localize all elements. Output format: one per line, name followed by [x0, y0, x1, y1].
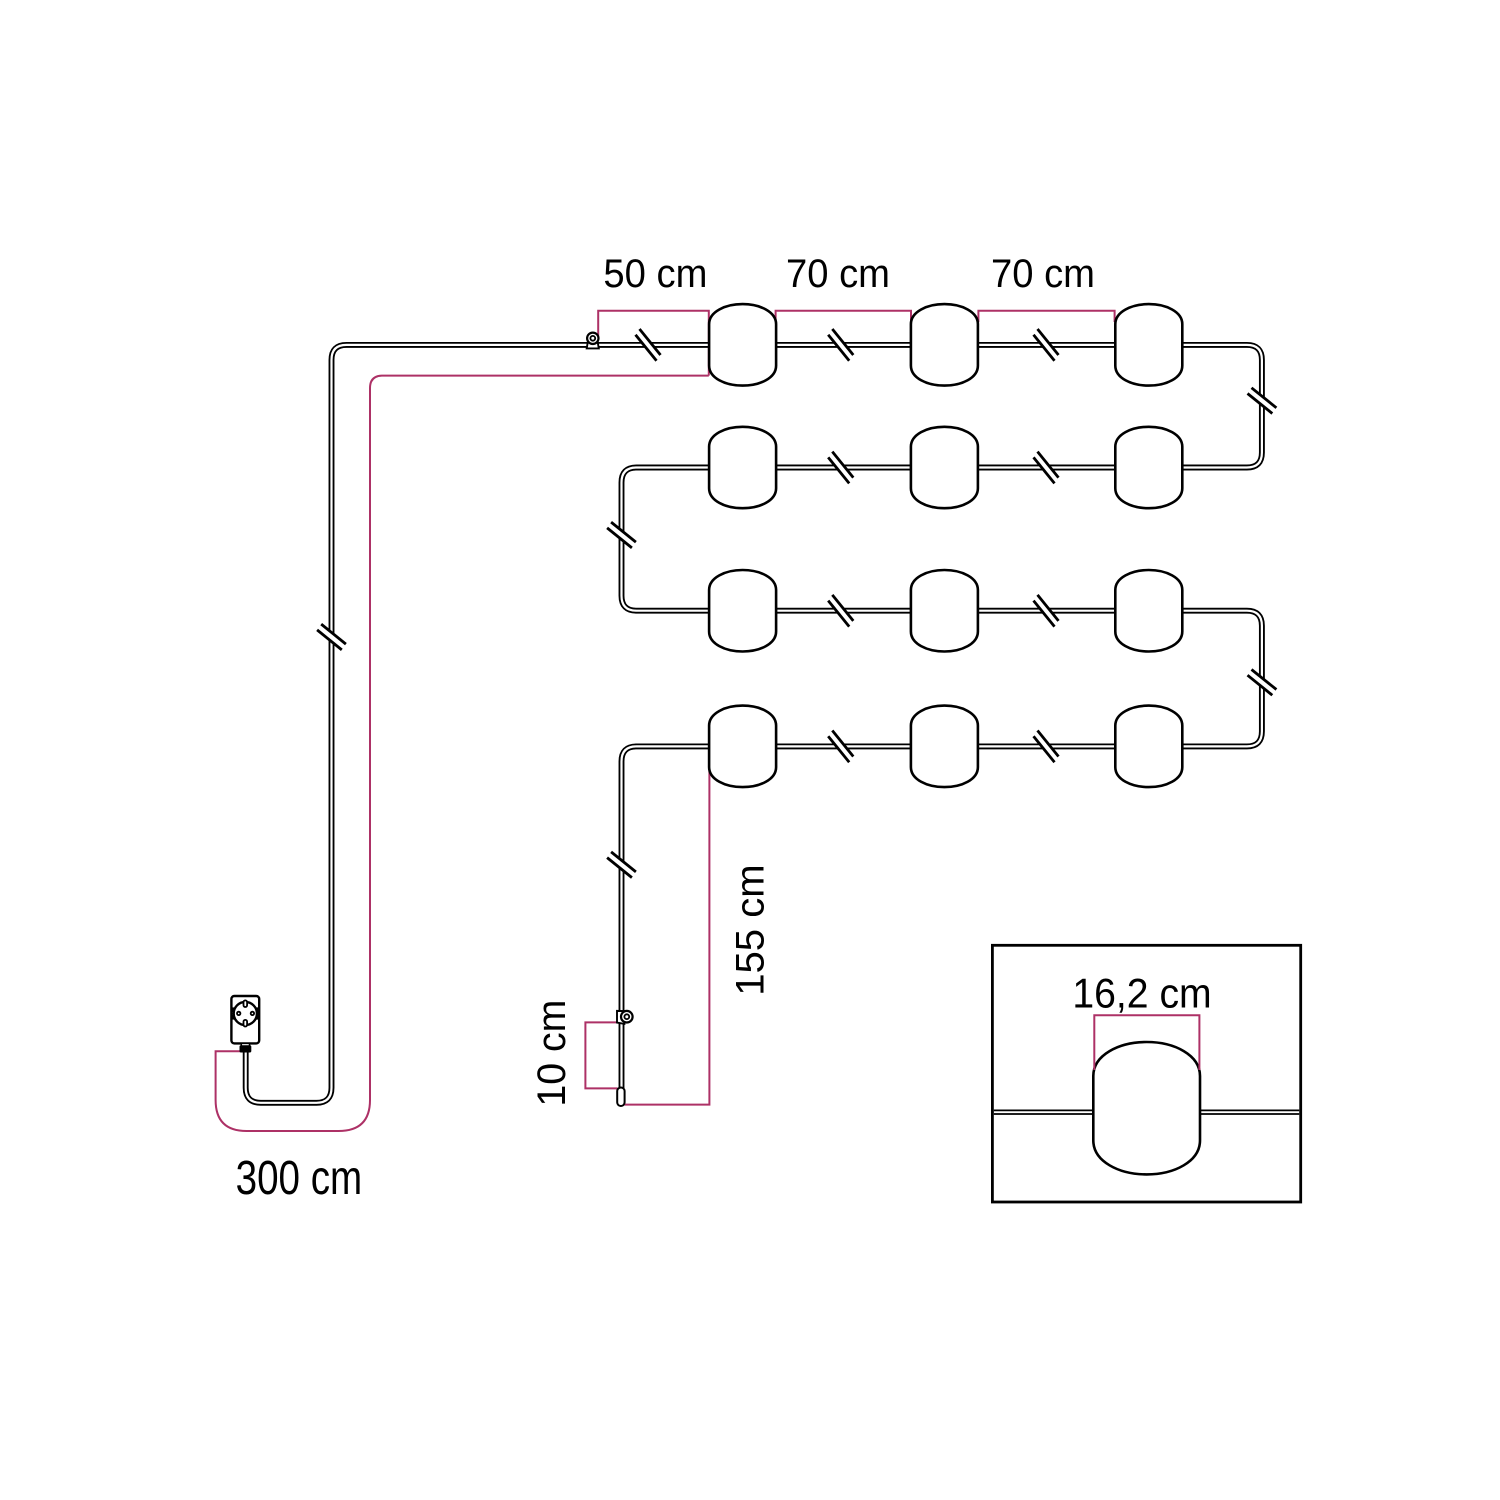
svg-text:155 cm: 155 cm: [729, 864, 773, 995]
svg-text:70 cm: 70 cm: [991, 252, 1095, 296]
svg-text:10 cm: 10 cm: [530, 1000, 574, 1107]
svg-text:16,2 cm: 16,2 cm: [1072, 969, 1211, 1016]
svg-text:300 cm: 300 cm: [236, 1152, 363, 1205]
svg-text:50 cm: 50 cm: [603, 252, 707, 296]
svg-text:70 cm: 70 cm: [786, 252, 890, 296]
